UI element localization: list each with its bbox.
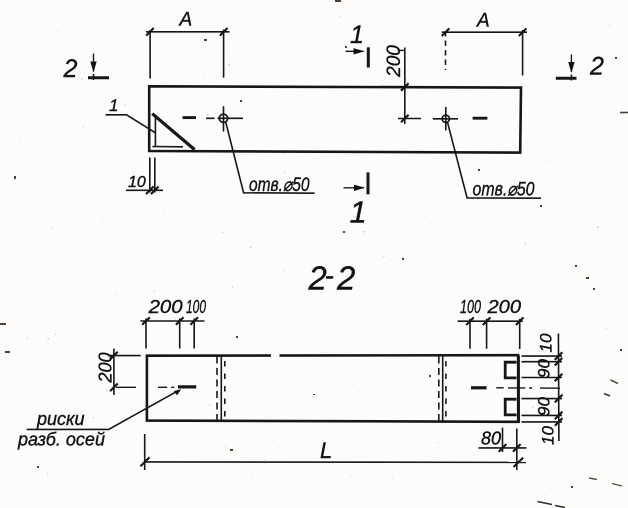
svg-text:1: 1 (350, 21, 364, 49)
svg-text:10: 10 (539, 426, 558, 445)
svg-text:80: 80 (481, 429, 501, 449)
svg-text:L: L (320, 438, 332, 463)
svg-text:2: 2 (63, 55, 78, 83)
svg-text:200: 200 (147, 297, 182, 317)
svg-text:90: 90 (535, 397, 554, 416)
svg-text:90: 90 (535, 359, 554, 378)
svg-text:A: A (179, 10, 193, 31)
svg-text:10: 10 (537, 333, 556, 352)
svg-text:200: 200 (384, 45, 405, 78)
svg-text:100: 100 (460, 297, 481, 317)
svg-text:отв.⌀50: отв.⌀50 (249, 175, 310, 196)
svg-text:1: 1 (109, 96, 118, 115)
svg-text:разб. осей: разб. осей (17, 430, 105, 450)
svg-text:2: 2 (589, 53, 604, 81)
svg-text:10: 10 (128, 174, 146, 191)
svg-text:A: A (476, 11, 490, 32)
svg-text:200: 200 (96, 352, 116, 383)
svg-text:отв.⌀50: отв.⌀50 (473, 180, 535, 201)
svg-text:100: 100 (186, 297, 206, 317)
svg-text:200: 200 (486, 297, 521, 317)
svg-text:1: 1 (350, 195, 367, 230)
svg-text:2: 2 (336, 260, 355, 297)
svg-text:-: - (325, 260, 334, 291)
svg-text:риски: риски (36, 409, 85, 429)
